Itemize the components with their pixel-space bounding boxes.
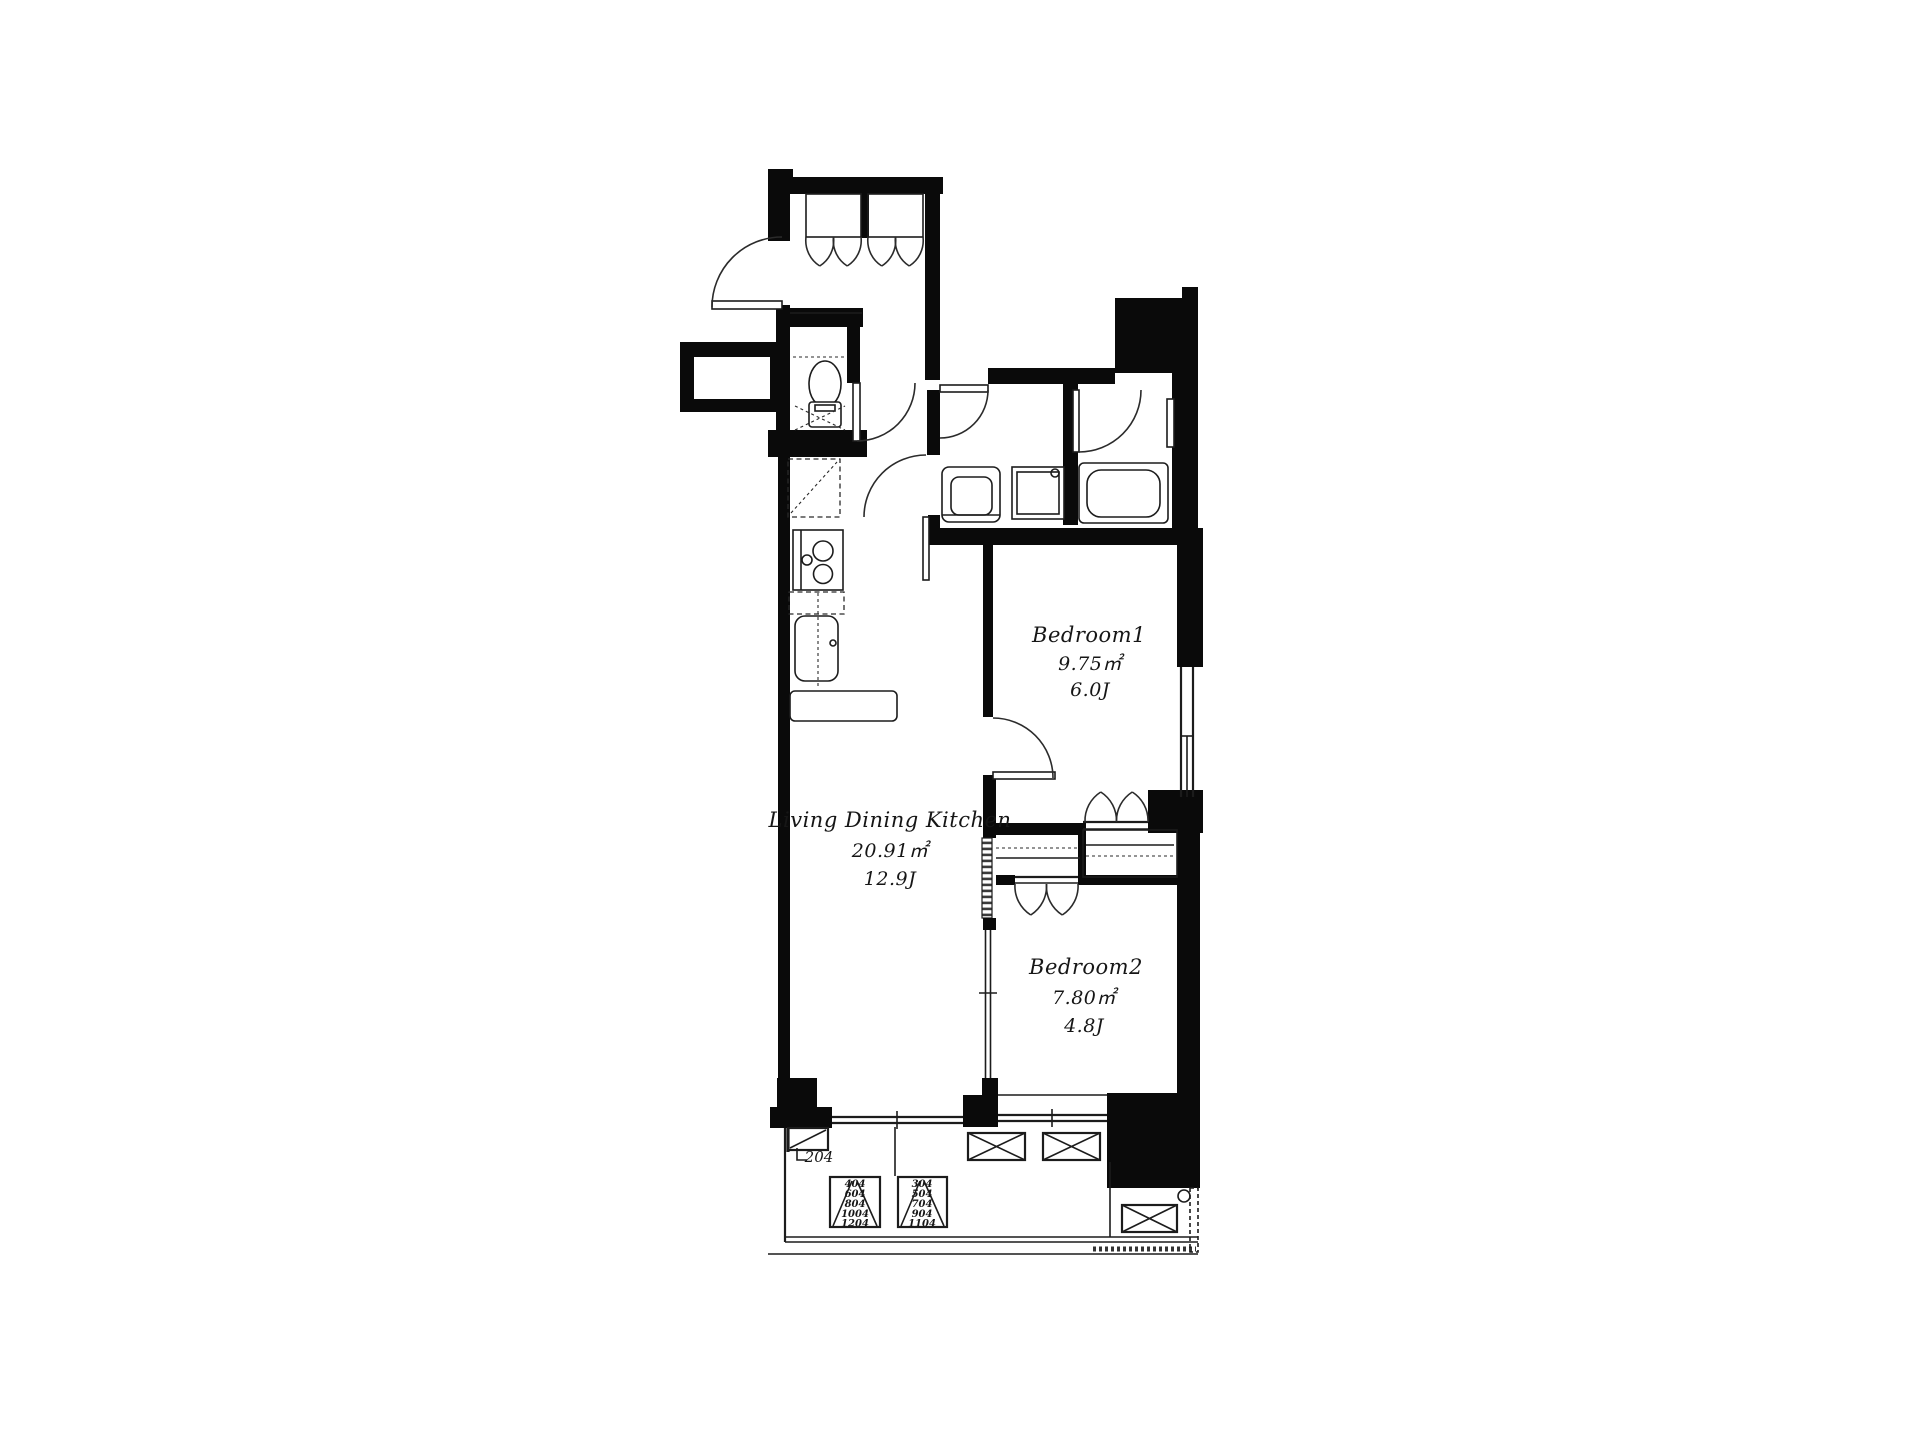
wall-toilet-bottom [768,430,867,457]
bifold-door-icon [1015,884,1047,915]
unit-number-label: 204 [804,1148,834,1166]
washroom-door-swing [940,390,988,438]
ldk-name-label: Living Dining Kitchen [768,808,1012,832]
wall-right-lower [1177,797,1200,1093]
sanitary-rooms [942,399,1174,523]
kitchen-counter-ledge [790,691,897,721]
stack-floor-label: 1204 [841,1219,869,1230]
washroom-door-leaf [940,385,988,392]
sliding-partition [979,930,997,1078]
ldk-sqm-label: 20.91㎡ [851,840,932,862]
wall-toilet-top [782,308,863,327]
bifold-door-icon [1085,792,1117,822]
hall-closet-right-box [868,194,923,237]
wall-bath-top-mass [1115,287,1198,373]
bathroom-door-swing [1079,390,1141,452]
bathroom-door-leaf [1073,390,1079,452]
kitchen [788,459,897,721]
wall-washroom-top [988,368,1115,384]
burner-icon [813,541,833,561]
bifold-door-icon [1116,792,1148,822]
toilet-room [793,357,847,430]
bifold-door-icon [1046,884,1078,915]
entrance-door-leaf [712,301,782,309]
counter-dashed-area [789,592,844,614]
bedroom1-closet-box [1083,830,1177,877]
bedroom1-sqm-label: 9.75㎡ [1058,653,1125,675]
wall-bedroom1-left-upper [983,545,993,717]
toilet-door-leaf [853,383,860,441]
wall-partition-stub [983,918,996,930]
ldk-door-swing [864,455,926,517]
ldk-tatami-label: 12.9J [864,868,917,890]
drain-pipe-icon [1178,1190,1190,1202]
wall-bedroom1-top [938,528,1203,545]
ldk-door-leaf [923,517,929,580]
wall-right-upper [1177,545,1203,667]
burner-icon [814,565,833,584]
wall-corner-mass [1107,1093,1200,1188]
wall-bedroom2-top-left-stub [996,875,1015,885]
bifold-door-icon [806,237,834,266]
entrance-door-swing [712,237,782,307]
wall-toilet-right-upper [847,327,860,383]
bifold-door-icon [868,237,896,266]
evacuation-hatch-diagonal [790,1130,826,1148]
bedroom1-door-leaf [993,772,1055,779]
windows [832,667,1193,1129]
washing-machine-pan [1012,467,1064,519]
wall-top [768,177,943,194]
refrigerator-diagonal [791,462,837,513]
bedroom2-name-label: Bedroom2 [1028,955,1143,979]
hall-closet-left-box [806,194,861,237]
wall-ldk-left [778,457,790,1078]
bedroom1-tatami-label: 6.0J [1070,679,1111,701]
bifold-door-icon [895,237,923,266]
wall-ldk-corner-mass [770,1078,832,1128]
wall-closet-divider [1078,823,1086,877]
bedroom1-name-label: Bedroom1 [1031,623,1146,647]
meter-box-niche [694,357,770,399]
bath-slit-window [1167,399,1174,447]
bedroom1-door-swing [993,718,1053,778]
bedroom2-sqm-label: 7.80㎡ [1052,987,1119,1009]
burner-icon [802,555,812,565]
walls [680,169,1203,1188]
wall-corridor-washroom [927,390,940,455]
floor-plan-drawing: Living Dining Kitchen 20.91㎡ 12.9J Bedro… [0,0,1920,1448]
stack-floor-label: 1104 [908,1219,936,1230]
floor-plan-page: Living Dining Kitchen 20.91㎡ 12.9J Bedro… [0,0,1920,1448]
wall-bath-right [1172,373,1198,530]
wall-hall-right [925,193,940,380]
bedroom2-tatami-label: 4.8J [1063,1015,1105,1037]
bifold-door-icon [833,237,861,266]
toilet-fixture [809,361,841,407]
wall-hall-left [768,193,790,241]
wall-window-pillar [963,1078,998,1127]
wall-partition-hatched [982,838,992,918]
kitchen-sink-fixture [795,616,838,681]
